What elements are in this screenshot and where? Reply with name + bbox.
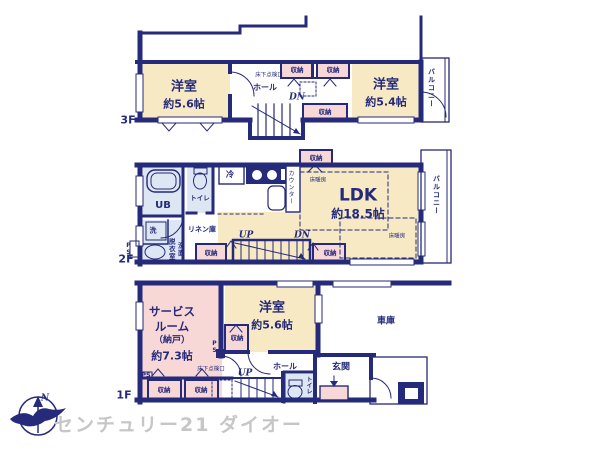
f2-dn-label: DN (294, 232, 310, 241)
f1-service-line1: サービス (149, 306, 195, 318)
f2-closet-left-label: 収納 (205, 250, 218, 257)
f1-closet-a-label: 収納 (158, 387, 171, 394)
f2-up-label: UP (239, 232, 254, 241)
f1-ps-left-label: PS (141, 372, 150, 379)
f1-porch (370, 357, 427, 404)
f1-stairs-icon (233, 378, 282, 400)
f3-closet-c-label: 収納 (319, 109, 332, 116)
f1-floor-label: 1F (116, 390, 131, 401)
f2-washer-label: 洗 (150, 228, 157, 235)
f2-closet-right-label: 収納 (324, 250, 337, 257)
floor3-plan (136, 17, 449, 138)
f3-hatch-label: 床下点検口 (255, 73, 283, 79)
f2-washbasin-label: 洗面 (177, 242, 184, 257)
f2-heating-a-label: 床暖房 (310, 178, 327, 184)
f1-entrance-step (320, 386, 348, 400)
f2-ub-label: UB (155, 201, 171, 211)
f1-up-label: UP (238, 370, 253, 379)
brand-logo-text: センチュリー21 ダイオー (54, 410, 303, 437)
f3-hall-label: ホール (253, 84, 277, 92)
f2-counter-label: カウンター (287, 170, 293, 205)
f2-linen-label: リネン庫 (188, 227, 216, 234)
f2-closet-top-label: 収納 (310, 155, 323, 162)
f1-hall-label: ホール (273, 363, 297, 371)
f1-garage-label: 車庫 (377, 318, 395, 327)
compass-north-label: N (41, 395, 49, 404)
f2-ldk-size: 約18.5帖 (331, 208, 385, 220)
f3-closet-a-label: 収納 (291, 67, 304, 74)
f1-room-name: 洋室 (259, 302, 285, 315)
f2-ps-label: PS (125, 242, 131, 256)
f1-closet-b-label: 収納 (195, 387, 208, 394)
f2-balcony-label: バルコニー (433, 175, 440, 215)
f3-balcony-label: バルコニー (428, 68, 435, 108)
f3-room-right-name: 洋室 (373, 79, 399, 92)
f1-ps-mid-label: PS (211, 340, 217, 354)
f1-entrance-label: 玄関 (332, 364, 350, 373)
f2-fridge-label: 冷 (226, 171, 234, 179)
f1-hatch-label: 床下点検口 (197, 367, 225, 373)
f2-toilet-label: トイレ (190, 195, 210, 202)
f2-ldk-name: LDK (339, 188, 377, 205)
f2-sink-icon (268, 186, 285, 210)
f1-service-line2: ルーム (155, 321, 189, 333)
f3-stairs-icon (252, 104, 300, 138)
f1-closet-mid-label: 収納 (231, 335, 244, 342)
f3-room-left-name: 洋室 (171, 81, 197, 94)
f1-room-size: 約5.6帖 (251, 320, 293, 331)
f3-closet-b-label: 収納 (327, 67, 340, 74)
f3-room-left-size: 約5.6帖 (163, 99, 205, 110)
f2-heating-b-label: 床暖房 (389, 234, 406, 240)
f3-floor-label: 3F (120, 115, 135, 126)
f3-room-right-size: 約5.4帖 (365, 97, 407, 108)
f1-service-line4: 約7.3帖 (151, 351, 193, 362)
floorplan-image: 3F 洋室 約5.6帖 床下点検口 ホール DN 収納 収納 収納 洋室 約5.… (0, 0, 600, 450)
f3-dn-label: DN (289, 94, 305, 103)
f1-service-line3: （納戸） (154, 337, 190, 346)
f2-dressing-label: 脱衣室 (168, 238, 175, 261)
f1-toilet-label: トイレ (305, 376, 311, 394)
